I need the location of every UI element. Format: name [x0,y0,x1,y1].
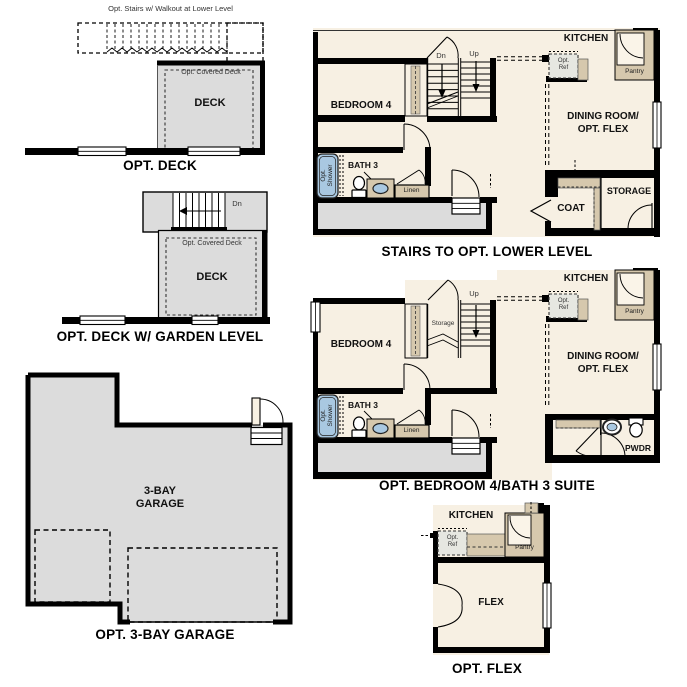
linen-label: Linen [395,427,428,435]
pwdr-label: PWDR [614,443,662,453]
kitchen-label: KITCHEN [441,510,501,522]
house-rear-wall [25,147,265,156]
cabinet [467,534,508,556]
linen-label: Linen [395,187,428,195]
bath3-label: BATH 3 [342,400,384,410]
pantry-label: Pantry [615,68,654,76]
toilet-shape [354,417,365,430]
covered-deck-label: Opt. Covered Deck [162,240,262,248]
floorplan-sheet: Opt. Stairs w/ Walkout at Lower Level Op… [0,0,687,687]
left-window [311,302,320,332]
deck-right-wall [262,230,268,317]
dn-label: Dn [226,199,248,208]
pantry-label: Pantry [615,308,654,316]
cabinet [578,299,588,320]
sink-shape [373,184,388,194]
up-label: Up [463,289,485,298]
toilet-shape [354,177,365,190]
kitchen-label: KITCHEN [551,33,621,45]
bed4-suite-figure [310,268,687,488]
window [653,344,661,390]
coat-shelf [558,178,600,188]
dining-label: DINING ROOM/ OPT. FLEX [558,110,648,136]
entry-steps [251,428,282,445]
bath3-label: BATH 3 [342,160,384,170]
deck-top-wall [157,61,265,66]
window [543,583,551,628]
opt-shower-label: Opt. Shower [320,393,335,438]
deck-room-label: DECK [162,271,262,284]
window [653,102,661,148]
rear-steps [452,198,480,214]
cabinet [578,59,588,80]
opt-garage-title: OPT. 3-BAY GARAGE [65,627,265,643]
pantry-label: Pantry [505,544,544,552]
covered-deck-label: Opt. Covered Deck [160,69,262,77]
dn-label: Dn [430,51,452,60]
opt-ref-label: Opt. Ref [549,58,578,72]
pwdr-counter [556,420,600,428]
storage-label: STORAGE [602,186,656,197]
coat-label: COAT [549,203,593,215]
bedroom4-label: BEDROOM 4 [321,100,401,112]
deck-room-label: DECK [160,97,260,110]
house-rear-wall [62,316,270,325]
flex-room-label: FLEX [461,597,521,609]
opt-ref-label: Opt. Ref [549,298,578,312]
up-label: Up [463,49,485,58]
opt-flex-figure [418,500,558,658]
opt-ref-label: Opt. Ref [438,535,467,549]
sink-shape [373,424,388,434]
entry-door [251,398,283,445]
opt-stairs-dashed [78,23,263,62]
opt-flex-title: OPT. FLEX [427,661,547,677]
bedroom4-label: BEDROOM 4 [321,339,401,351]
opt-shower-label: Opt. Shower [320,153,335,198]
toilet-shape [630,423,642,437]
storage-closet-label: Storage [426,320,460,328]
dining-label: DINING ROOM/ OPT. FLEX [558,350,648,376]
opt-deck-figure [20,2,290,174]
opt-stairs-note: Opt. Stairs w/ Walkout at Lower Level [73,4,268,13]
opt-deck-title: OPT. DECK [80,158,240,174]
stairs-lower-title: STAIRS TO OPT. LOWER LEVEL [337,244,637,260]
opt-deck-garden-title: OPT. DECK W/ GARDEN LEVEL [35,329,285,345]
bed4-suite-title: OPT. BEDROOM 4/BATH 3 SUITE [337,478,637,494]
kitchen-label: KITCHEN [551,273,621,285]
door-arc [260,399,283,423]
stairs-break-line [107,48,227,52]
rear-steps [452,438,480,454]
garage-room-label: 3-BAY GARAGE [112,485,208,511]
garden-stairs [143,192,267,232]
